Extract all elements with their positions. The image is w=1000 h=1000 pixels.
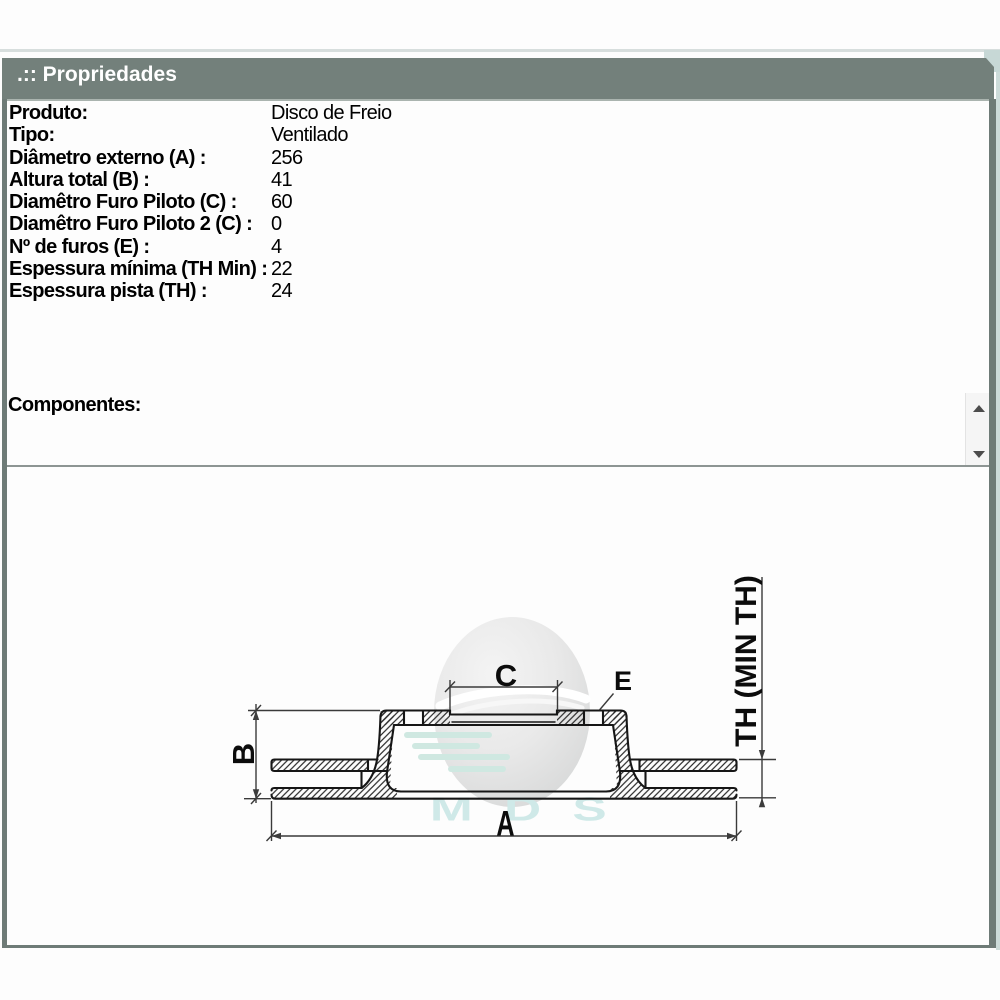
svg-text:B: B [226,743,261,765]
svg-text:E: E [614,666,632,696]
svg-text:TH (MIN TH): TH (MIN TH) [730,575,763,747]
svg-text:MDS: MDS [430,791,638,828]
svg-text:C: C [495,658,517,693]
svg-text:A: A [496,805,514,844]
